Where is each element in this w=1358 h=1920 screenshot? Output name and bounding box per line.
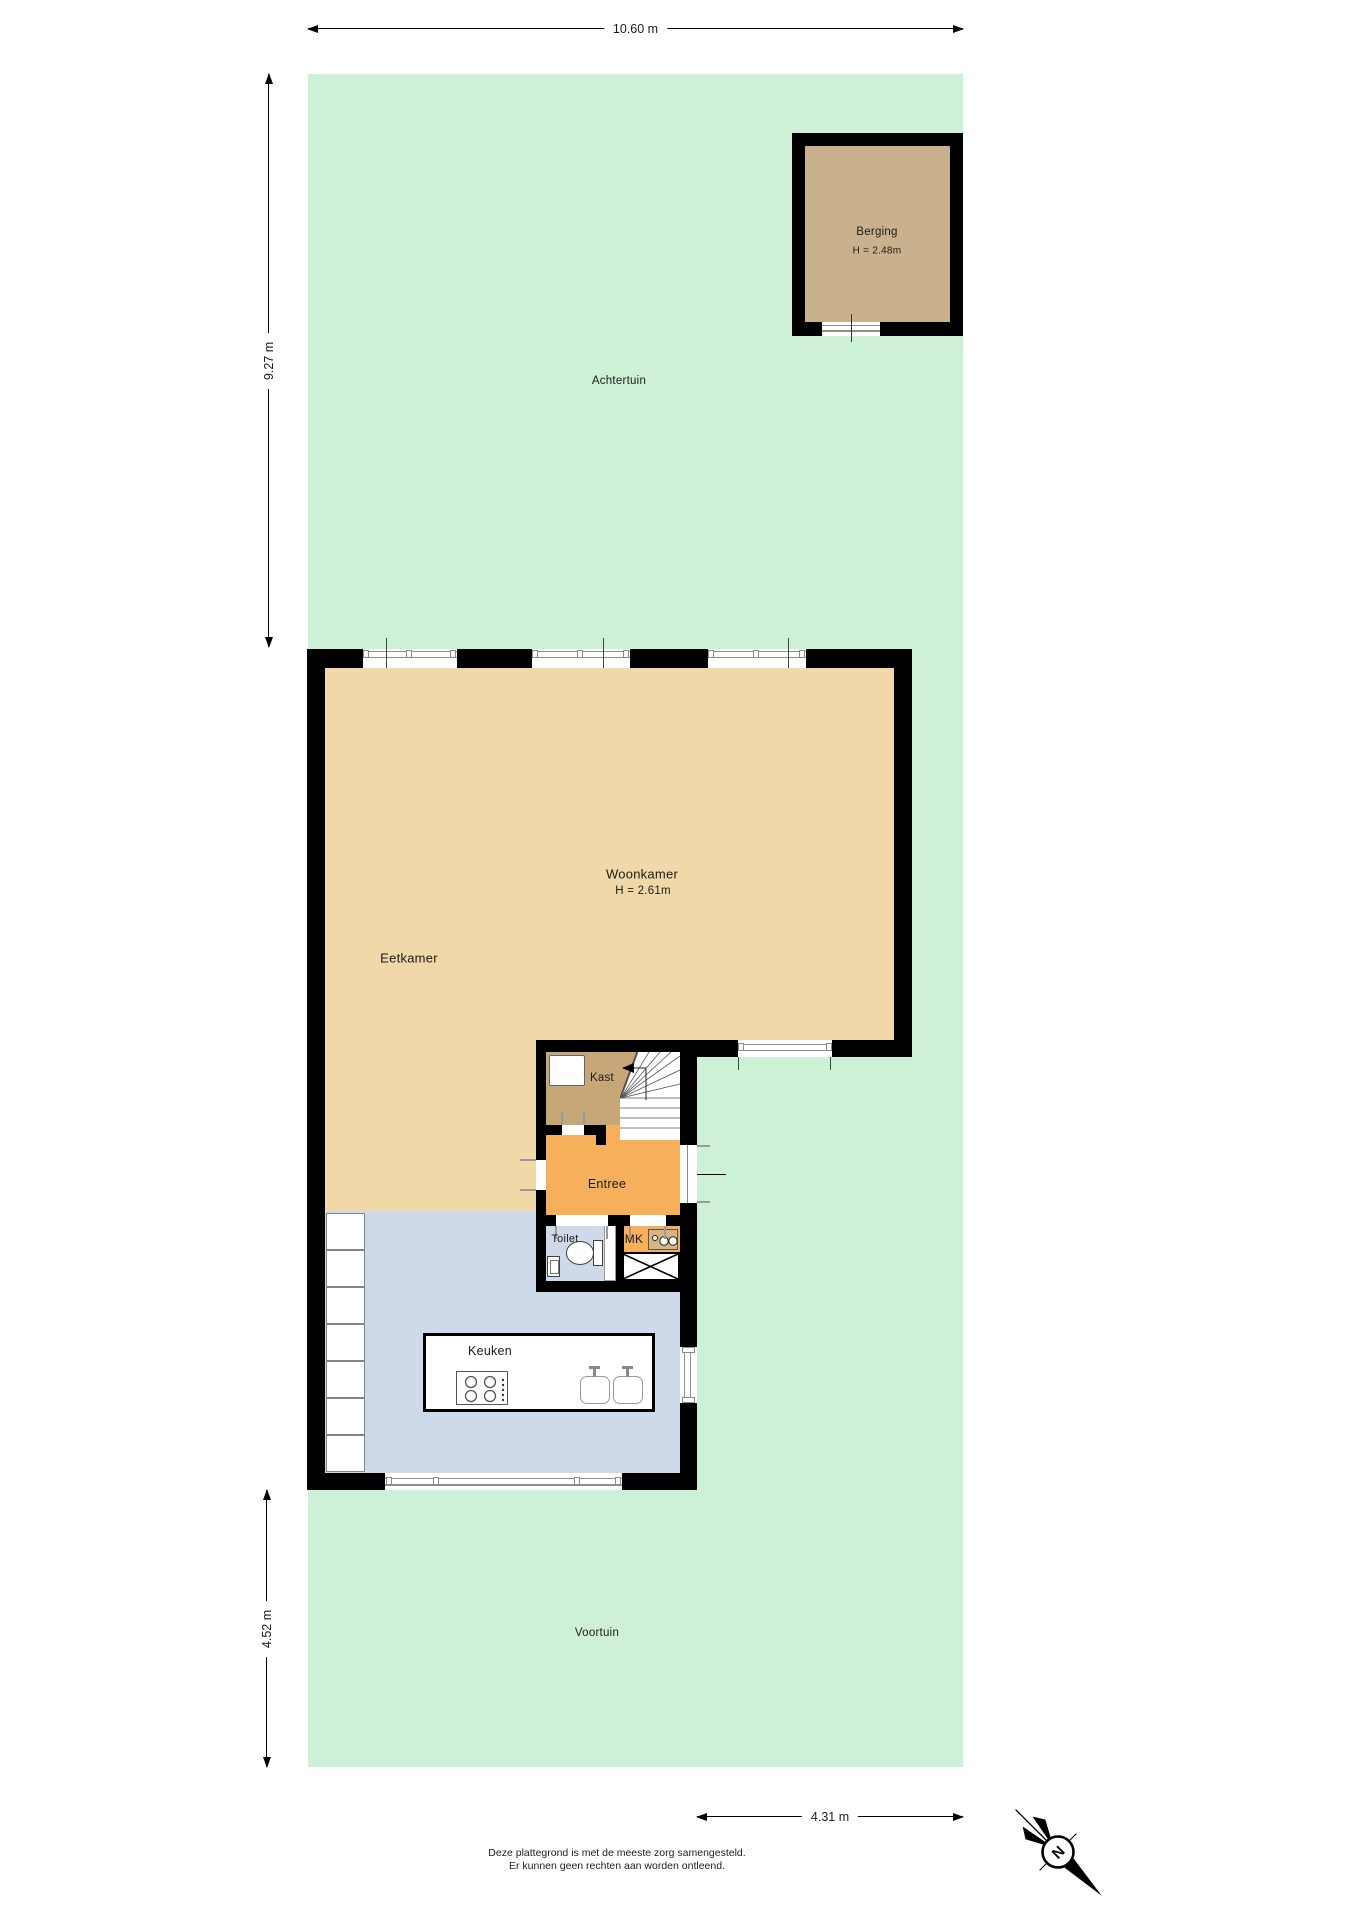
door-tick <box>697 1201 710 1203</box>
wall-left <box>307 649 325 1490</box>
door-swing-line <box>697 1174 726 1175</box>
dimension-front-garden: 4.52 m <box>266 1490 267 1767</box>
berging-wall-top <box>792 133 963 146</box>
window-woonkamer-rear <box>738 1040 832 1057</box>
arrow-up-icon <box>263 1489 271 1500</box>
arrow-right-icon <box>953 1813 964 1821</box>
window-stop <box>574 1477 580 1485</box>
door-toilet <box>556 1215 608 1226</box>
arrow-down-icon <box>265 637 273 648</box>
window-stop <box>406 650 412 658</box>
window-keuken-front <box>385 1473 622 1490</box>
window-line <box>690 1347 692 1403</box>
kitchen-cabinet <box>326 1361 365 1398</box>
sink <box>580 1376 610 1404</box>
arrow-left-icon <box>307 25 318 33</box>
window-line <box>684 1347 686 1403</box>
dimension-value: 10.60 m <box>604 22 667 36</box>
basin-inner <box>550 1260 559 1274</box>
window-stop <box>623 650 629 658</box>
door-tick <box>697 1145 710 1147</box>
window-stop <box>682 1397 695 1403</box>
window-stop <box>450 650 456 658</box>
wall-stub <box>596 1125 606 1145</box>
door-eetkamer-entree <box>536 1160 546 1190</box>
toilet-tank <box>593 1240 603 1266</box>
door-tick <box>606 1226 608 1239</box>
window-keuken-side <box>680 1347 697 1403</box>
kitchen-cabinet <box>326 1435 365 1472</box>
window-stop <box>682 1347 695 1353</box>
cooktop-burners <box>457 1372 509 1406</box>
kitchen-cabinet <box>326 1398 365 1435</box>
window-line <box>385 1484 622 1486</box>
window-stop <box>738 1043 744 1051</box>
room-label-woonkamer: Woonkamer <box>606 867 678 882</box>
room-label-achtertuin: Achtertuin <box>592 375 646 387</box>
door-tick <box>520 1159 536 1161</box>
wall-right-upper <box>894 649 912 1057</box>
dimension-side-width: 4.31 m <box>697 1816 963 1817</box>
floor-plan-page: Achtertuin Voortuin Berging H = 2.48m Ke… <box>0 0 1358 1920</box>
boiler-unit <box>648 1229 678 1250</box>
eetkamer-floor <box>325 1040 536 1211</box>
room-label-eetkamer: Eetkamer <box>380 951 438 966</box>
window-stop <box>363 650 369 658</box>
window-line <box>738 1044 832 1046</box>
room-label-meterkast: MK <box>625 1232 644 1246</box>
window-top-2 <box>532 649 630 668</box>
door-tick <box>664 1226 666 1239</box>
window-tick <box>788 638 789 668</box>
faucet-icon <box>589 1366 600 1369</box>
berging-wall-right <box>950 133 963 336</box>
kitchen-cabinet <box>326 1213 365 1250</box>
window-stop <box>615 1477 621 1485</box>
sink <box>613 1376 643 1404</box>
faucet-icon <box>626 1368 629 1377</box>
room-label-berging: Berging <box>856 226 897 238</box>
window-stop <box>753 650 759 658</box>
room-label-kast: Kast <box>590 1072 614 1084</box>
window-tick <box>603 638 604 668</box>
hand-basin <box>547 1256 560 1277</box>
kitchen-cabinet <box>326 1287 365 1324</box>
door-tick <box>561 1112 563 1125</box>
dimension-value: 9.27 m <box>262 332 276 388</box>
room-label-keuken: Keuken <box>468 1344 512 1358</box>
door-entree-side <box>680 1145 697 1203</box>
entree-floor <box>546 1135 680 1215</box>
window-stop <box>532 650 538 658</box>
wall-toilet-divider <box>616 1226 624 1281</box>
window-stop <box>708 650 714 658</box>
window-tick <box>738 1057 739 1070</box>
room-height-berging: H = 2.48m <box>853 246 902 257</box>
dimension-value: 4.52 m <box>260 1600 274 1656</box>
window-line <box>385 1478 622 1480</box>
window-top-3 <box>708 649 806 668</box>
berging-wall-left <box>792 133 805 336</box>
arrow-down-icon <box>263 1757 271 1768</box>
staircase <box>620 1052 680 1140</box>
window-tick <box>386 638 387 668</box>
dimension-value: 4.31 m <box>802 1810 858 1824</box>
kitchen-cabinet <box>326 1324 365 1361</box>
window-tick <box>830 1057 831 1070</box>
door-frame-line <box>687 1145 688 1203</box>
shaft-box <box>621 1252 680 1281</box>
window-stop <box>386 1477 392 1485</box>
window-stop <box>433 1477 439 1485</box>
faucet-icon <box>593 1368 596 1377</box>
window-line <box>738 1050 832 1052</box>
window-stop <box>826 1043 832 1051</box>
arrow-up-icon <box>265 73 273 84</box>
arrow-left-icon <box>696 1813 707 1821</box>
door-kast <box>562 1125 584 1135</box>
faucet-icon <box>622 1366 633 1369</box>
kast-appliance <box>549 1055 585 1086</box>
room-label-voortuin: Voortuin <box>575 1627 619 1639</box>
dimension-plot-width: 10.60 m <box>308 28 963 29</box>
room-label-entree: Entree <box>588 1177 626 1191</box>
door-meterkast <box>630 1215 666 1226</box>
disclaimer: Deze plattegrond is met de meeste zorg s… <box>488 1847 745 1873</box>
kitchen-cabinet <box>326 1250 365 1287</box>
cooktop <box>456 1371 508 1405</box>
wall-toilet-bottom <box>536 1281 683 1292</box>
arrow-right-icon <box>953 25 964 33</box>
room-label-toilet: Toilet <box>551 1233 578 1245</box>
window-stop <box>799 650 805 658</box>
disclaimer-line-2: Er kunnen geen rechten aan worden ontlee… <box>488 1860 745 1873</box>
window-stop <box>577 650 583 658</box>
dimension-rear-garden: 9.27 m <box>268 74 269 647</box>
woonkamer-floor <box>325 668 894 1040</box>
wall-right-lower <box>680 1040 697 1490</box>
door-tick <box>583 1112 585 1125</box>
disclaimer-line-1: Deze plattegrond is met de meeste zorg s… <box>488 1847 745 1860</box>
wall-block-top <box>536 1040 680 1052</box>
door-tick <box>520 1189 536 1191</box>
berging-door-tick <box>851 314 852 342</box>
window-top-1 <box>363 649 457 668</box>
shaft-cross-icon <box>623 1254 678 1279</box>
room-height-woonkamer: H = 2.61m <box>615 885 671 897</box>
compass-icon: N <box>1002 1796 1114 1908</box>
